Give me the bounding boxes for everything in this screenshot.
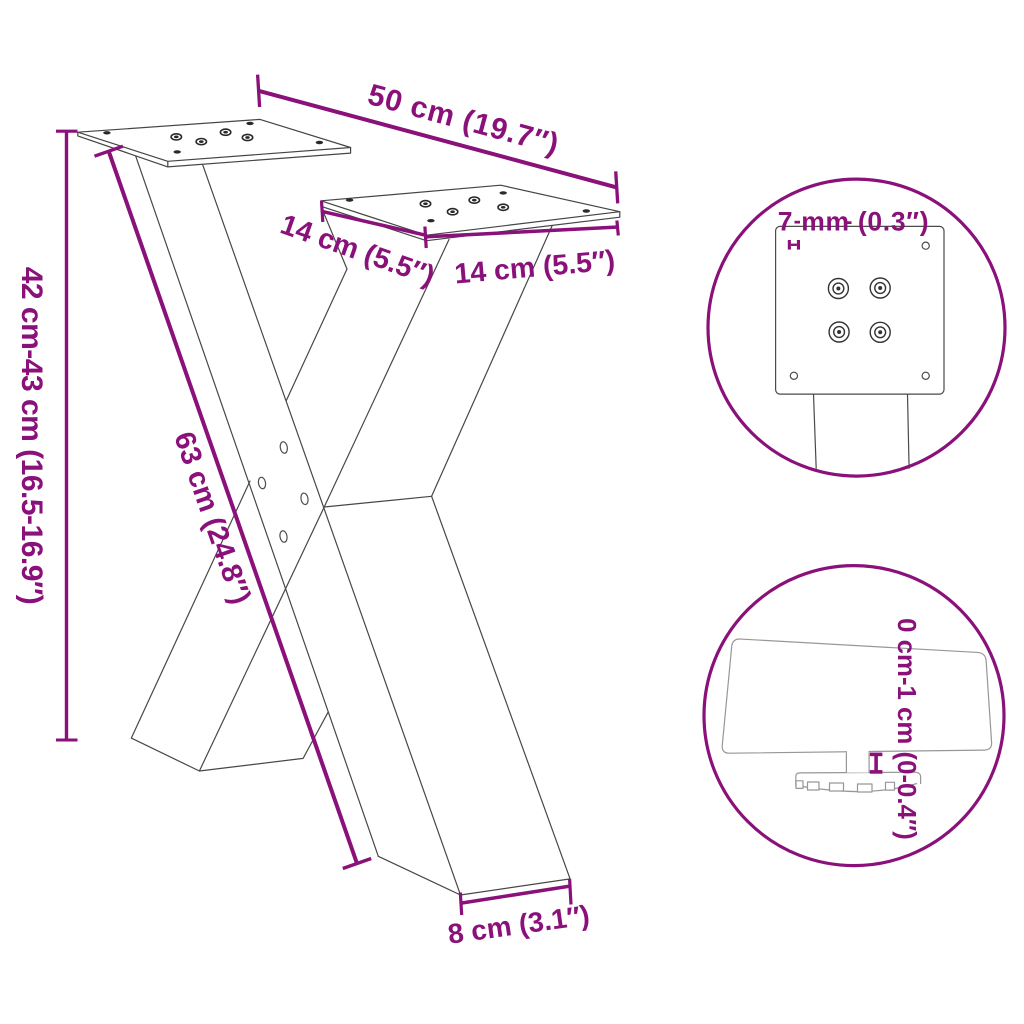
svg-text:0 cm-1 cm (0-0.4″): 0 cm-1 cm (0-0.4″) <box>892 618 920 840</box>
svg-text:7 mm (0.3″): 7 mm (0.3″) <box>778 206 929 236</box>
svg-text:42 cm-43 cm (16.5-16.9″): 42 cm-43 cm (16.5-16.9″) <box>15 267 48 605</box>
